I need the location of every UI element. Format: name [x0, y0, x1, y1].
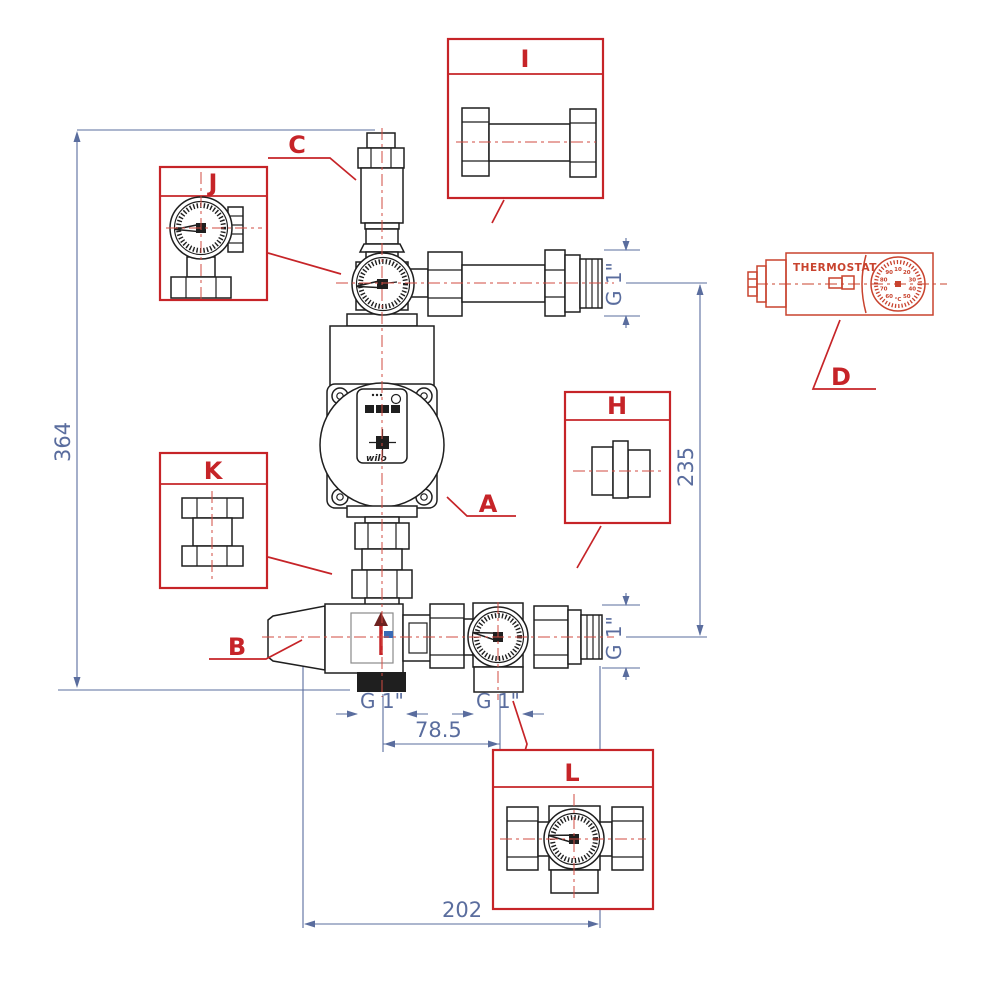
thermostat-dial-mark: 20	[903, 270, 911, 276]
thermostat-dial-mark: 30	[908, 277, 916, 283]
dim-height-between-pipes: 235	[674, 447, 698, 487]
dim-port-spacing: 78.5	[415, 718, 462, 742]
callout-box-k: K	[160, 453, 332, 588]
hex-nipple-fitting-icon	[592, 441, 650, 498]
callout-letter-h: H	[607, 392, 627, 420]
air-vent-valve	[358, 133, 404, 260]
thermostat-sensor-icon	[829, 278, 842, 288]
dim-thread-port-left: G 1"	[360, 689, 404, 713]
dim-overall-width: 202	[442, 898, 482, 922]
label-d: D	[813, 320, 876, 391]
thermostat-dial-mark: °C	[895, 297, 902, 303]
thermostat-dial-mark: 80	[880, 277, 888, 283]
thermostat-dial-mark: 90	[885, 270, 893, 276]
dim-overall-height: 364	[51, 422, 75, 462]
thermostat-dial-mark: 10	[894, 267, 902, 273]
label-a: A	[447, 490, 516, 518]
thermometer-gauge-icon	[352, 253, 414, 315]
callout-letter-j: J	[207, 169, 218, 197]
svg-text:B: B	[228, 633, 246, 661]
svg-text:A: A	[479, 490, 498, 518]
thermostat-dial-mark: 40	[908, 287, 916, 293]
callout-box-l: L	[493, 701, 653, 909]
thermostat-dial-mark: 60	[885, 294, 893, 300]
upper-valve-with-gauge	[347, 253, 428, 326]
dim-thread-top-right: G 1"	[602, 262, 626, 306]
label-c: C	[268, 131, 356, 180]
callout-box-h: H	[565, 392, 670, 568]
callout-box-j: J	[160, 167, 341, 301]
svg-text:C: C	[288, 131, 306, 159]
thermostatic-valve-b	[268, 604, 433, 692]
callout-letter-l: L	[564, 759, 579, 787]
callout-letter-k: K	[204, 457, 224, 485]
leader-labels: C A B D	[209, 131, 876, 661]
dim-thread-bottom-right: G 1"	[602, 616, 626, 660]
technical-diagram: 364 235 202 78.5 G 1"	[0, 0, 1000, 1000]
lower-pipe-run	[430, 603, 602, 692]
pump-brand-logo: wilo	[366, 454, 387, 464]
pump-group-drawing: 364 235 202 78.5 G 1"	[0, 0, 1000, 1000]
callout-letter-i: I	[521, 45, 530, 73]
svg-text:D: D	[831, 363, 851, 391]
assembly-drawing: wilo	[268, 133, 602, 692]
thermostat-dial-mark: 50	[903, 294, 911, 300]
pump-display-icon	[365, 405, 374, 413]
thermostat-drawing: THERMOSTAT 10 20 30 40 50 °C 60 70 80 90	[748, 253, 947, 315]
callout-box-i: I	[448, 39, 603, 223]
thermostat-dial-mark: 70	[880, 287, 888, 293]
